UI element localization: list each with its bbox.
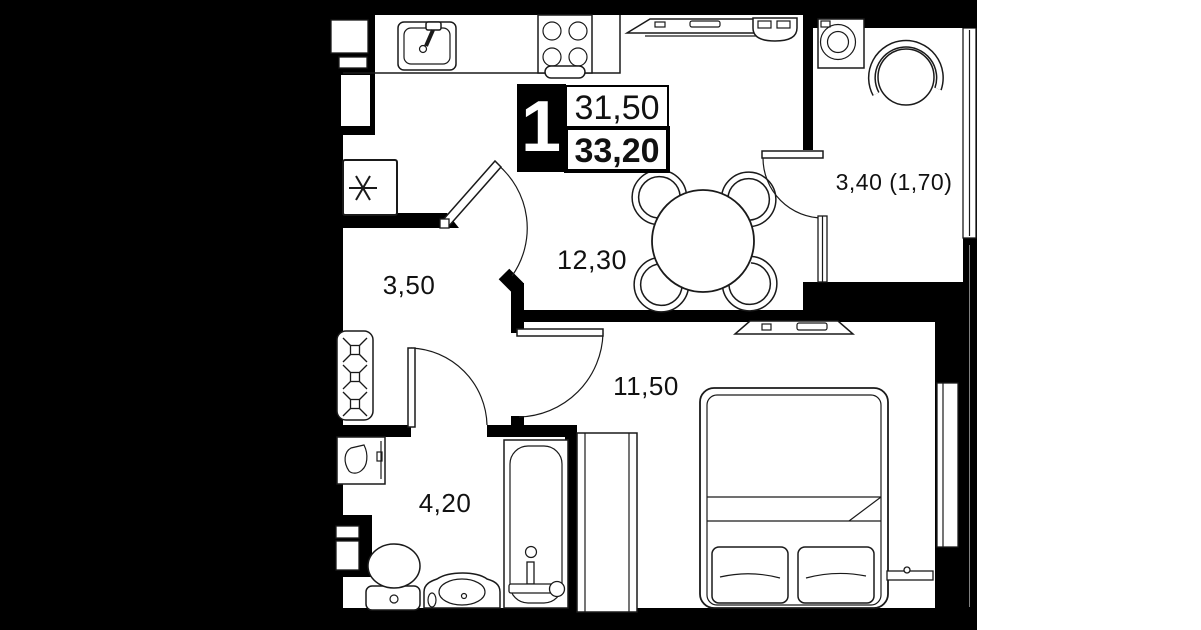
vent-shaft-bathroom [336,526,359,570]
tv-console-bedroom [735,321,853,334]
kitchen-sink [398,22,456,70]
balcony-glazing [963,28,976,238]
hall-wardrobe [337,331,373,420]
bedroom-wardrobe [577,433,637,612]
water-heater-cabinet [337,437,385,484]
floorplan-image: 12,30 3,50 11,50 4,20 3,40 (1,70) 1 31,5… [0,0,1201,630]
pillow [798,547,874,603]
vent-shaft-top [331,20,372,128]
double-bed [700,388,888,608]
unit-number: 1 [521,87,561,167]
bedroom-window [937,383,958,547]
ac-unit [753,18,797,41]
unit-area-lower: 33,20 [574,132,659,170]
room-label-kitchen-living: 12,30 [557,245,627,275]
room-label-balcony: 3,40 (1,70) [836,169,953,195]
dining-table [652,190,754,292]
balcony-partition-window [818,216,827,282]
room-label-bedroom: 11,50 [613,371,679,401]
pillow [712,547,788,603]
unit-area-upper: 31,50 [574,89,659,127]
room-label-bathroom: 4,20 [419,488,472,518]
unit-badge: 1 31,50 33,20 [517,84,668,172]
cooktop [538,15,592,78]
bathtub [504,440,568,608]
room-label-hallway: 3,50 [383,270,436,300]
toilet [366,544,420,610]
washing-machine [818,19,864,68]
fridge-icon [343,160,397,215]
floorplan-svg: 12,30 3,50 11,50 4,20 3,40 (1,70) 1 31,5… [0,0,1201,630]
